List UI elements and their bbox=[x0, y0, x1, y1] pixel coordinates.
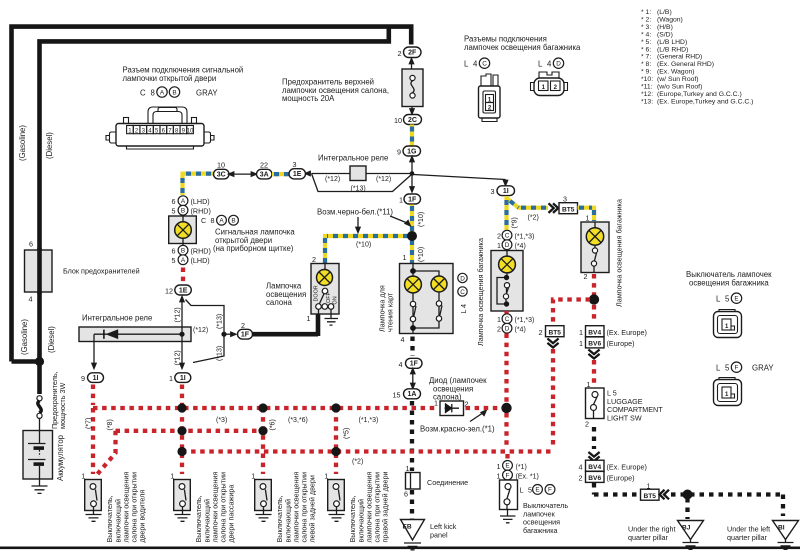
svg-text:C: C bbox=[505, 233, 510, 240]
svg-text:4: 4 bbox=[399, 360, 403, 369]
svg-text:1: 1 bbox=[307, 314, 311, 323]
svg-text:(*10): (*10) bbox=[356, 242, 371, 249]
svg-text:L: L bbox=[716, 364, 721, 373]
svg-text:*12:: *12: bbox=[641, 91, 653, 98]
svg-text:(Ex. Europe,Turkey and G.C.C.): (Ex. Europe,Turkey and G.C.C.) bbox=[657, 98, 753, 105]
svg-text:(*1,*3): (*1,*3) bbox=[515, 234, 535, 241]
svg-text:2C: 2C bbox=[408, 117, 417, 124]
svg-text:L: L bbox=[716, 295, 721, 304]
svg-text:лампочки открытой двери: лампочки открытой двери bbox=[123, 74, 217, 83]
svg-text:3A: 3A bbox=[260, 172, 269, 179]
svg-text:В: В bbox=[231, 218, 235, 225]
svg-text:2: 2 bbox=[497, 232, 501, 241]
svg-text:BV6: BV6 bbox=[588, 341, 601, 348]
svg-text:* 6:: * 6: bbox=[641, 46, 651, 53]
svg-text:А: А bbox=[181, 198, 186, 205]
svg-text:1I: 1I bbox=[503, 188, 509, 195]
svg-text:8: 8 bbox=[151, 89, 155, 98]
svg-text:Интегральное реле: Интегральное реле bbox=[82, 314, 152, 323]
svg-text:5: 5 bbox=[172, 207, 176, 216]
svg-text:(*3,*6): (*3,*6) bbox=[288, 417, 308, 424]
svg-text:6: 6 bbox=[29, 240, 33, 249]
svg-text:(*1): (*1) bbox=[516, 464, 527, 471]
svg-text:(Diesel): (Diesel) bbox=[47, 326, 56, 353]
svg-text:9: 9 bbox=[397, 148, 401, 157]
svg-text:D: D bbox=[556, 61, 561, 68]
svg-text:(*7): (*7) bbox=[86, 418, 93, 429]
svg-text:(w/o Sun Roof): (w/o Sun Roof) bbox=[657, 84, 702, 91]
svg-text:Интегральное реле: Интегральное реле bbox=[318, 154, 388, 163]
svg-text:(*12): (*12) bbox=[376, 176, 391, 183]
svg-text:ON: ON bbox=[332, 296, 338, 304]
svg-text:правой задней двери: правой задней двери bbox=[381, 471, 390, 542]
svg-text:В: В bbox=[181, 248, 185, 255]
svg-text:(Wagon): (Wagon) bbox=[657, 16, 683, 23]
svg-text:5: 5 bbox=[172, 256, 176, 265]
svg-text:* 5:: * 5: bbox=[641, 39, 651, 46]
svg-text:(Gasoline): (Gasoline) bbox=[20, 319, 29, 355]
svg-text:L: L bbox=[538, 60, 543, 69]
svg-text:1: 1 bbox=[403, 253, 407, 262]
svg-text:(S/D): (S/D) bbox=[657, 31, 673, 38]
svg-text:BT5: BT5 bbox=[562, 206, 575, 213]
svg-text:4: 4 bbox=[401, 335, 405, 344]
svg-text:10: 10 bbox=[394, 116, 402, 125]
svg-text:BV4: BV4 bbox=[588, 329, 601, 336]
svg-text:4: 4 bbox=[579, 463, 583, 472]
svg-text:(L/B): (L/B) bbox=[657, 9, 672, 16]
svg-text:Возм.черно-бел.(*11): Возм.черно-бел.(*11) bbox=[317, 208, 393, 217]
svg-text:* 9:: * 9: bbox=[641, 69, 651, 76]
svg-text:10: 10 bbox=[187, 128, 194, 134]
svg-text:(*12): (*12) bbox=[325, 176, 340, 183]
svg-text:(Europe): (Europe) bbox=[607, 474, 635, 483]
svg-text:1E: 1E bbox=[293, 171, 302, 178]
svg-text:D: D bbox=[505, 242, 510, 249]
svg-text:* 7:: * 7: bbox=[641, 54, 651, 61]
svg-text:3C: 3C bbox=[217, 172, 226, 179]
svg-text:1A: 1A bbox=[408, 391, 417, 398]
svg-text:5: 5 bbox=[528, 486, 532, 495]
svg-text:1: 1 bbox=[579, 339, 583, 348]
svg-text:22: 22 bbox=[260, 161, 268, 170]
svg-text:(*13): (*13) bbox=[217, 346, 224, 361]
svg-text:2: 2 bbox=[497, 325, 501, 334]
svg-text:(Gasoline): (Gasoline) bbox=[18, 125, 27, 161]
svg-text:(L/B LHD): (L/B LHD) bbox=[657, 39, 687, 46]
svg-text:BT5: BT5 bbox=[643, 493, 656, 500]
svg-text:6: 6 bbox=[404, 490, 408, 499]
svg-text:(*12): (*12) bbox=[193, 327, 208, 334]
svg-text:(Diesel): (Diesel) bbox=[45, 132, 54, 159]
svg-text:9: 9 bbox=[81, 374, 85, 383]
svg-text:EB: EB bbox=[403, 524, 412, 531]
svg-text:2F: 2F bbox=[408, 50, 417, 57]
svg-text:(Europe): (Europe) bbox=[607, 339, 635, 348]
svg-text:(*1,*3): (*1,*3) bbox=[359, 417, 379, 424]
svg-text:(Europe,Turkey and G.C.C.): (Europe,Turkey and G.C.C.) bbox=[657, 91, 742, 98]
svg-text:А: А bbox=[160, 89, 165, 96]
svg-text:(*13): (*13) bbox=[351, 186, 366, 193]
svg-text:4: 4 bbox=[547, 60, 552, 69]
svg-text:BV6: BV6 bbox=[588, 475, 601, 482]
svg-text:1: 1 bbox=[497, 241, 501, 250]
svg-text:(на приборном щитке): (на приборном щитке) bbox=[213, 244, 294, 253]
svg-text:А: А bbox=[219, 218, 224, 225]
svg-text:(Ex. Europe): (Ex. Europe) bbox=[607, 328, 647, 337]
svg-text:(RHD): (RHD) bbox=[191, 207, 211, 216]
svg-text:левой задней двери: левой задней двери bbox=[308, 475, 317, 542]
svg-text:(*10): (*10) bbox=[418, 247, 425, 262]
svg-text:8: 8 bbox=[211, 216, 215, 225]
svg-text:Аккумулятор: Аккумулятор bbox=[56, 434, 65, 481]
svg-text:(Ex. *1): (Ex. *1) bbox=[516, 474, 539, 481]
svg-text:1: 1 bbox=[579, 328, 583, 337]
svg-text:1I: 1I bbox=[93, 375, 99, 382]
svg-text:(*3): (*3) bbox=[216, 417, 227, 424]
svg-text:(*10): (*10) bbox=[418, 212, 425, 227]
svg-text:6: 6 bbox=[172, 197, 176, 206]
svg-text:1: 1 bbox=[497, 462, 501, 471]
svg-text:GRAY: GRAY bbox=[752, 364, 774, 373]
svg-text:E: E bbox=[734, 296, 738, 303]
svg-text:C: C bbox=[505, 316, 510, 323]
svg-text:(*4): (*4) bbox=[515, 243, 526, 250]
svg-text:OFF: OFF bbox=[326, 292, 332, 303]
svg-text:E: E bbox=[505, 463, 509, 470]
svg-text:Блок предохранителей: Блок предохранителей bbox=[63, 267, 140, 276]
svg-text:3: 3 bbox=[293, 160, 297, 169]
svg-text:(*2): (*2) bbox=[528, 215, 539, 222]
svg-text:(RHD): (RHD) bbox=[191, 247, 211, 256]
svg-text:F: F bbox=[548, 487, 552, 494]
svg-text:Лампочка освещения багажника: Лампочка освещения багажника bbox=[615, 199, 624, 307]
svg-text:двери водителя: двери водителя bbox=[138, 490, 147, 543]
svg-text:1: 1 bbox=[497, 315, 501, 324]
svg-text:Соединение: Соединение bbox=[427, 478, 468, 487]
svg-text:BT5: BT5 bbox=[548, 329, 561, 336]
svg-text:А: А bbox=[181, 257, 186, 264]
svg-text:1E: 1E bbox=[179, 287, 188, 294]
svg-text:*10:: *10: bbox=[641, 76, 653, 83]
svg-text:2: 2 bbox=[539, 328, 543, 337]
svg-text:4: 4 bbox=[473, 60, 478, 69]
svg-text:* 3:: * 3: bbox=[641, 24, 651, 31]
svg-text:GRAY: GRAY bbox=[196, 89, 218, 98]
svg-text:*13:: *13: bbox=[641, 98, 653, 105]
svg-text:1G: 1G bbox=[407, 148, 417, 155]
svg-text:мощность 20А: мощность 20А bbox=[282, 94, 335, 103]
svg-text:(*9): (*9) bbox=[512, 217, 519, 228]
svg-text:(L/B RHD): (L/B RHD) bbox=[657, 46, 688, 53]
svg-text:освещения багажника: освещения багажника bbox=[689, 278, 769, 287]
svg-text:мощность 3W: мощность 3W bbox=[58, 383, 67, 429]
svg-text:1I: 1I bbox=[180, 375, 186, 382]
svg-text:(*13): (*13) bbox=[217, 314, 224, 329]
svg-text:(*12): (*12) bbox=[175, 350, 182, 365]
svg-text:DOOR: DOOR bbox=[313, 285, 319, 301]
svg-text:1: 1 bbox=[399, 196, 403, 205]
svg-text:(LHD): (LHD) bbox=[191, 256, 210, 265]
svg-text:4: 4 bbox=[459, 304, 468, 308]
svg-text:D: D bbox=[505, 326, 510, 333]
svg-text:* 1:: * 1: bbox=[641, 9, 651, 16]
svg-text:* 4:: * 4: bbox=[641, 31, 651, 38]
svg-text:(*8): (*8) bbox=[107, 419, 114, 430]
svg-text:5: 5 bbox=[725, 295, 730, 304]
svg-text:лампочек освещения багажника: лампочек освещения багажника bbox=[464, 43, 581, 52]
svg-text:(*2): (*2) bbox=[352, 459, 363, 466]
svg-text:(*1,*3): (*1,*3) bbox=[515, 317, 535, 324]
svg-text:BJ: BJ bbox=[682, 525, 691, 532]
svg-text:двери пассажира: двери пассажира bbox=[227, 485, 236, 543]
svg-text:(H/B): (H/B) bbox=[657, 24, 673, 31]
svg-text:(General RHD): (General RHD) bbox=[657, 54, 702, 61]
svg-text:1: 1 bbox=[169, 374, 173, 383]
svg-text:(LHD): (LHD) bbox=[191, 197, 210, 206]
svg-text:2: 2 bbox=[585, 420, 589, 429]
svg-text:(Ex. Wagon): (Ex. Wagon) bbox=[657, 69, 695, 76]
svg-text:2: 2 bbox=[241, 321, 245, 330]
svg-text:1: 1 bbox=[406, 464, 410, 473]
svg-text:*11:: *11: bbox=[641, 84, 653, 91]
svg-text:10: 10 bbox=[217, 161, 225, 170]
svg-text:F: F bbox=[506, 472, 510, 479]
svg-text:(*12): (*12) bbox=[175, 307, 182, 322]
svg-text:1F: 1F bbox=[241, 332, 250, 339]
svg-text:3: 3 bbox=[491, 187, 495, 196]
svg-text:L: L bbox=[459, 310, 468, 314]
svg-text:5: 5 bbox=[725, 364, 730, 373]
svg-text:багажника: багажника bbox=[523, 526, 558, 535]
svg-text:С: С bbox=[201, 216, 206, 225]
svg-text:E: E bbox=[535, 487, 539, 494]
svg-text:1: 1 bbox=[497, 472, 501, 481]
svg-text:panel: panel bbox=[430, 530, 448, 539]
svg-text:(*6): (*6) bbox=[270, 419, 277, 430]
svg-text:* 2:: * 2: bbox=[641, 16, 651, 23]
svg-text:С: С bbox=[140, 89, 146, 98]
svg-text:1F: 1F bbox=[408, 196, 417, 203]
svg-text:В: В bbox=[172, 89, 176, 96]
svg-text:F: F bbox=[735, 365, 739, 372]
svg-text:2: 2 bbox=[579, 474, 583, 483]
svg-text:BV4: BV4 bbox=[588, 464, 601, 471]
svg-text:BI: BI bbox=[778, 525, 785, 532]
svg-text:2: 2 bbox=[398, 49, 402, 58]
svg-text:D: D bbox=[460, 275, 465, 282]
svg-text:Возм.красно-зел.(*1): Возм.красно-зел.(*1) bbox=[420, 425, 495, 434]
svg-text:чтения карт: чтения карт bbox=[386, 292, 395, 332]
svg-text:(Ex. Europe): (Ex. Europe) bbox=[607, 463, 647, 472]
svg-text:(Ex. General RHD): (Ex. General RHD) bbox=[657, 61, 714, 68]
svg-text:quarter pillar: quarter pillar bbox=[727, 533, 768, 542]
svg-text:В: В bbox=[181, 208, 185, 215]
svg-text:2: 2 bbox=[584, 272, 588, 281]
svg-text:1: 1 bbox=[434, 399, 438, 408]
svg-text:салона: салона bbox=[266, 298, 293, 307]
svg-text:quarter pillar: quarter pillar bbox=[628, 533, 669, 542]
svg-text:(*4): (*4) bbox=[515, 327, 526, 334]
svg-text:Лампочка освещения багажника: Лампочка освещения багажника bbox=[476, 238, 485, 346]
svg-text:1: 1 bbox=[586, 214, 590, 223]
svg-text:L: L bbox=[464, 60, 469, 69]
svg-text:12: 12 bbox=[165, 287, 173, 296]
svg-text:(w/ Sun Roof): (w/ Sun Roof) bbox=[657, 76, 699, 83]
svg-text:1F: 1F bbox=[410, 361, 419, 368]
svg-text:LIGHT SW: LIGHT SW bbox=[607, 413, 642, 422]
svg-text:* 8:: * 8: bbox=[641, 61, 651, 68]
svg-text:C: C bbox=[460, 289, 465, 296]
svg-text:(*5): (*5) bbox=[344, 428, 351, 439]
svg-text:2: 2 bbox=[312, 255, 316, 264]
svg-text:6: 6 bbox=[172, 247, 176, 256]
svg-text:3: 3 bbox=[563, 195, 567, 204]
svg-text:C: C bbox=[482, 61, 487, 68]
svg-text:4: 4 bbox=[29, 295, 33, 304]
svg-text:15: 15 bbox=[393, 391, 401, 400]
svg-text:L: L bbox=[520, 486, 524, 495]
